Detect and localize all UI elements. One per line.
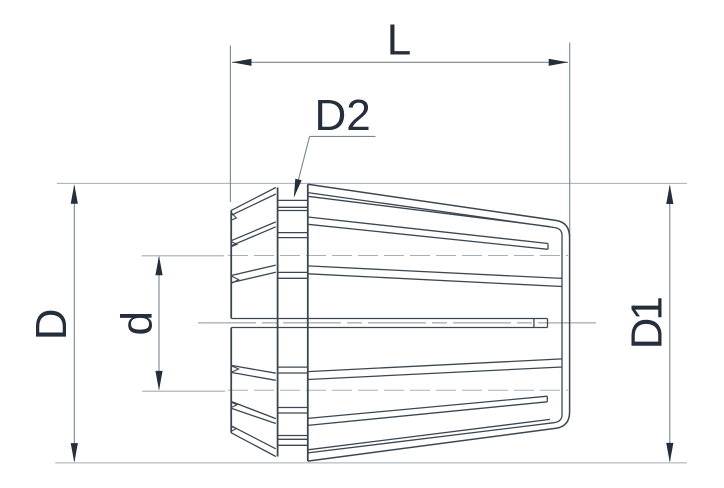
svg-text:L: L xyxy=(387,16,411,65)
svg-text:D: D xyxy=(27,308,76,340)
svg-text:D1: D1 xyxy=(623,298,672,350)
svg-text:D2: D2 xyxy=(315,91,371,140)
svg-text:d: d xyxy=(113,311,162,335)
